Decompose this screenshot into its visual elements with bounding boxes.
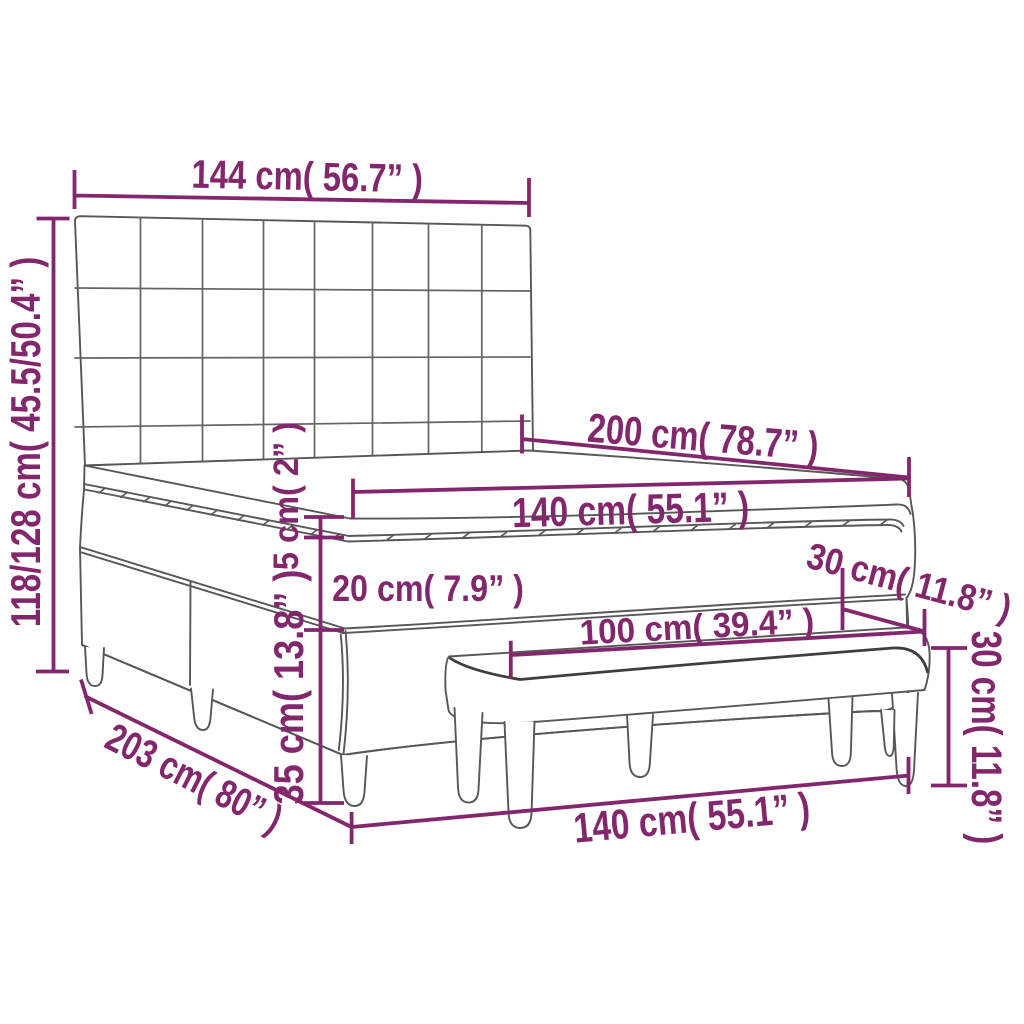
svg-text:5 cm( 2” ): 5 cm( 2” ) bbox=[267, 422, 306, 570]
svg-text:30 cm( 11.8” ): 30 cm( 11.8” ) bbox=[962, 631, 1010, 844]
svg-text:144 cm( 56.7” ): 144 cm( 56.7” ) bbox=[191, 151, 423, 201]
svg-text:35 cm( 13.8” ): 35 cm( 13.8” ) bbox=[267, 570, 313, 805]
svg-text:140 cm( 55.1” ): 140 cm( 55.1” ) bbox=[511, 484, 749, 537]
svg-text:118/128 cm( 45.5/50.4” ): 118/128 cm( 45.5/50.4” ) bbox=[3, 257, 50, 628]
svg-text:20 cm( 7.9” ): 20 cm( 7.9” ) bbox=[332, 568, 524, 610]
